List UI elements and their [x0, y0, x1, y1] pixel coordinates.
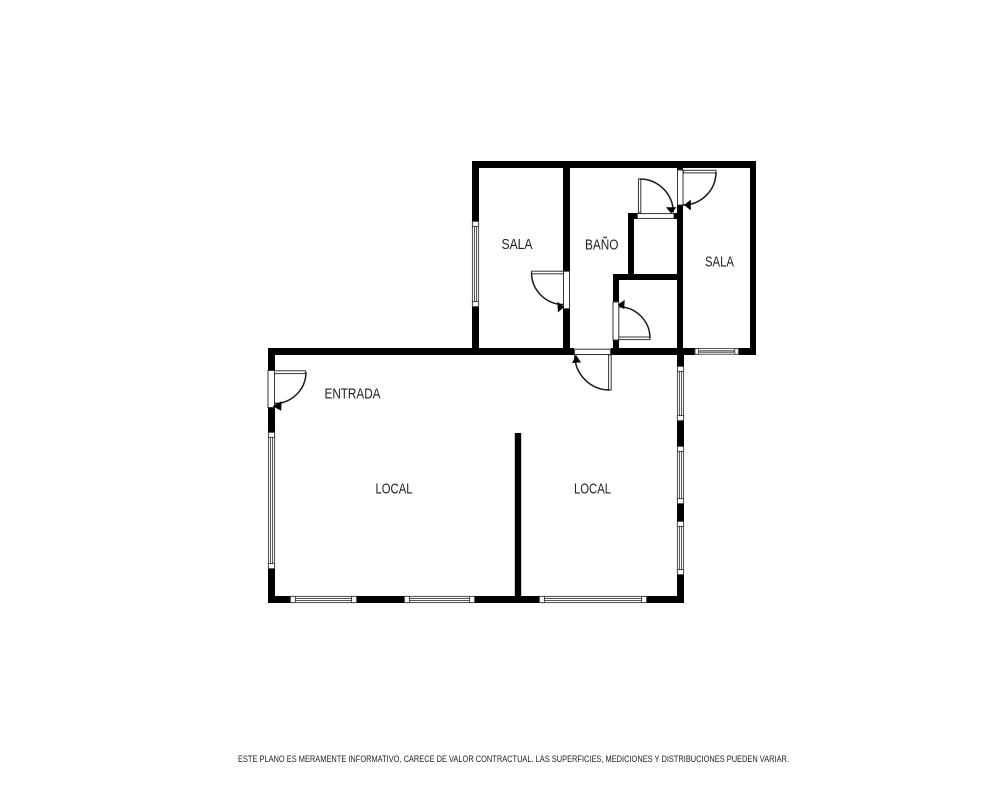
svg-text:LOCAL: LOCAL [574, 481, 611, 497]
svg-text:ESTE PLANO ES MERAMENTE INFORM: ESTE PLANO ES MERAMENTE INFORMATIVO, CAR… [238, 754, 789, 765]
svg-text:SALA: SALA [502, 237, 533, 253]
svg-text:SALA: SALA [705, 254, 734, 270]
svg-text:ENTRADA: ENTRADA [325, 386, 381, 403]
svg-text:BAÑO: BAÑO [585, 237, 619, 254]
svg-text:LOCAL: LOCAL [376, 481, 413, 497]
